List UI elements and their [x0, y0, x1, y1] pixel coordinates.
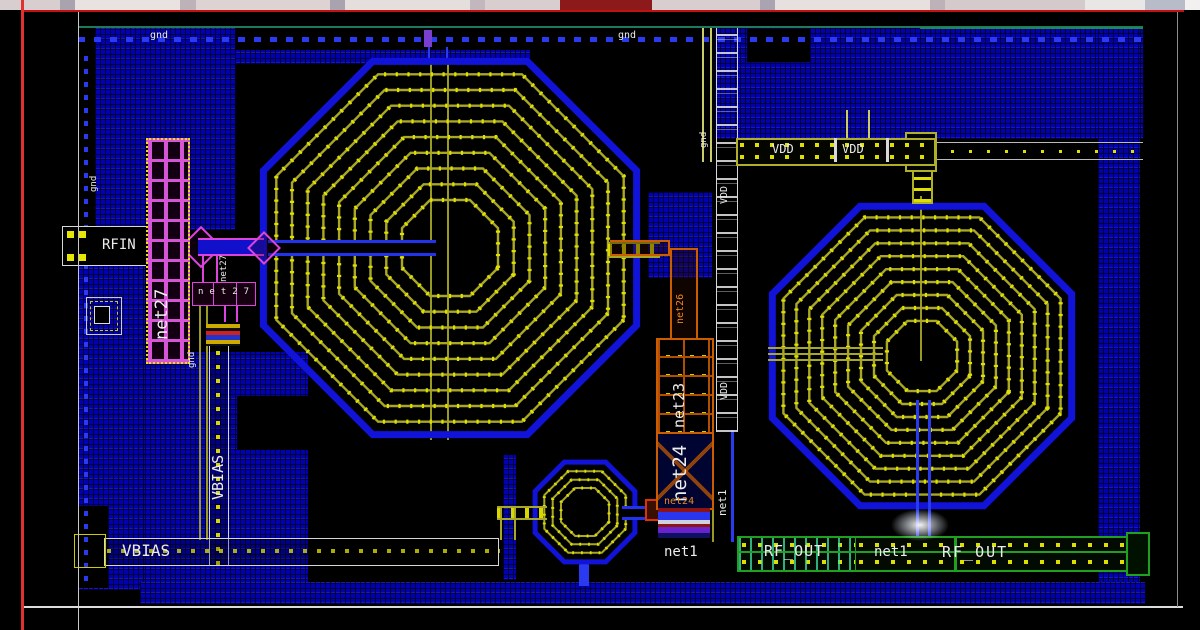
bias-line-a — [199, 283, 201, 540]
vbias-to-inductor-connector — [500, 508, 516, 540]
ground-hatch-bottom-band — [140, 582, 1145, 604]
net27-capacitor-label: net27 — [154, 200, 171, 340]
mim-stack[interactable] — [658, 508, 710, 538]
gnd-feed-line-b — [710, 28, 712, 162]
cursor-highlight-glow — [891, 509, 949, 541]
net26-label: net26 — [676, 286, 686, 324]
vdd-rail-extension[interactable] — [933, 142, 1143, 160]
ground-hatch-right-column — [1098, 27, 1140, 589]
vdd-rail-label-b: VDD — [842, 143, 864, 155]
ruler-vertical-line — [78, 12, 79, 630]
inductor-left-feed-blue[interactable] — [268, 240, 436, 256]
net27-trace-label: net27 — [220, 244, 229, 282]
rfin-label: RFIN — [102, 238, 136, 252]
net1-left-label: net1 — [664, 545, 698, 559]
gnd-label-top-right: gnd — [618, 31, 636, 41]
corner-marker-box[interactable] — [86, 297, 122, 335]
frame-red-left-line — [21, 0, 24, 630]
net1-mid-label: net1 — [874, 545, 908, 559]
net23-label: net23 — [672, 344, 687, 428]
net1-column-label: net1 — [717, 476, 728, 516]
gnd-label-mid-vertical: gnd — [188, 328, 197, 368]
gnd-label-top-left: gnd — [150, 31, 168, 41]
rfout-label-a: RF_OUT — [764, 544, 824, 559]
toolbar-sliver[interactable] — [0, 0, 1200, 10]
black-notch-topright — [747, 29, 810, 62]
layout-editor-canvas: RFIN net27 net27 net27 VBIAS VBIAS net26… — [0, 0, 1200, 630]
net1-blue-line — [731, 430, 734, 542]
vdd-column-label-b: VDD — [720, 366, 730, 400]
bias-line-b — [206, 283, 208, 540]
topright-green-edge — [920, 27, 1143, 29]
top-center-via[interactable] — [424, 30, 432, 47]
rfout-label-b: RF_OUT — [942, 545, 1008, 560]
vdd-rail[interactable] — [736, 138, 936, 166]
frame-red-top-line — [24, 10, 1184, 12]
net24-block-label: net24 — [671, 438, 690, 502]
inductor-right-crossbars — [768, 346, 883, 361]
net27-row-label: net27 — [198, 288, 255, 297]
vdd-top-stub — [846, 110, 870, 138]
vbias-vertical-label: VBIAS — [211, 420, 226, 500]
net26-horizontal-trace[interactable] — [610, 240, 670, 256]
gnd-label-right-vertical: gnd — [700, 108, 709, 148]
gnd-label-left-vertical: gnd — [90, 152, 99, 192]
vbias-horizontal-label: VBIAS — [122, 543, 170, 559]
vdd-column-label-a: VDD — [720, 170, 730, 204]
canvas-bottom-line — [24, 606, 1183, 608]
vdd-rail-label-a: VDD — [772, 143, 794, 155]
net24-small-label: net24 — [664, 497, 694, 507]
rfout-end-box[interactable] — [1126, 532, 1150, 576]
canvas-right-line — [1177, 12, 1178, 607]
via-stack-small[interactable] — [206, 324, 240, 346]
device-stub — [224, 304, 238, 322]
